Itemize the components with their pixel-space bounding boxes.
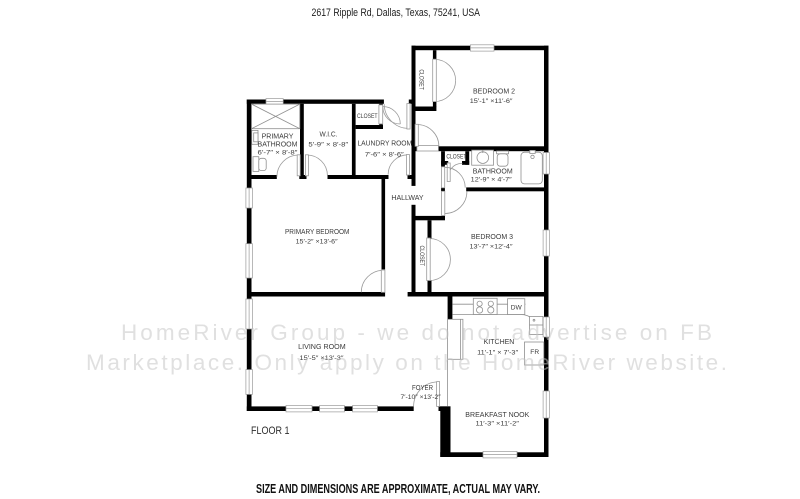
svg-text:W.I.C.: W.I.C. [320,131,338,138]
svg-text:BEDROOM 2: BEDROOM 2 [473,88,515,95]
svg-text:BATHROOM: BATHROOM [473,168,513,175]
svg-text:CLOSET: CLOSET [446,153,466,160]
svg-text:CLOSET: CLOSET [357,113,378,120]
svg-text:HALLWAY: HALLWAY [391,195,423,202]
svg-text:BREAKFAST NOOK: BREAKFAST NOOK [465,412,529,419]
svg-text:6′-7″ × 8′-8″: 6′-7″ × 8′-8″ [258,149,299,156]
svg-text:BEDROOM 3: BEDROOM 3 [471,234,513,241]
svg-text:BATHROOM: BATHROOM [258,142,298,149]
svg-text:PRIMARY BEDROOM: PRIMARY BEDROOM [285,229,350,236]
svg-text:15′-2″ ×13′-6″: 15′-2″ ×13′-6″ [296,239,339,246]
svg-text:CLOSET: CLOSET [418,69,425,90]
svg-text:2617 Ripple Rd, Dallas, Texas,: 2617 Ripple Rd, Dallas, Texas, 75241, US… [312,7,481,19]
svg-text:FLOOR 1: FLOOR 1 [251,425,290,437]
svg-text:FOYER: FOYER [412,385,433,392]
svg-text:DW: DW [511,304,523,311]
svg-text:12′-9″ × 4′-7″: 12′-9″ × 4′-7″ [471,177,513,184]
svg-text:13′-7″ ×12′-4″: 13′-7″ ×12′-4″ [470,244,514,251]
svg-text:11′-3″ ×11′-2″: 11′-3″ ×11′-2″ [476,420,520,427]
svg-text:CLOSET: CLOSET [418,246,425,267]
svg-text:LAUNDRY ROOM: LAUNDRY ROOM [357,140,412,147]
svg-text:PRIMARY: PRIMARY [262,134,294,141]
svg-text:15′-1″ ×11′-6″: 15′-1″ ×11′-6″ [470,98,513,105]
svg-text:7′-6″ × 8′-6″: 7′-6″ × 8′-6″ [365,152,405,159]
svg-text:7′-10″ ×13′-2″: 7′-10″ ×13′-2″ [401,394,442,401]
svg-text:SIZE AND DIMENSIONS ARE APPROX: SIZE AND DIMENSIONS ARE APPROXIMATE, ACT… [256,481,540,496]
svg-text:Marketplace. Only apply on the: Marketplace. Only apply on the HomeRiver… [86,350,727,375]
svg-text:5′-9″ × 8′-8″: 5′-9″ × 8′-8″ [308,142,348,149]
